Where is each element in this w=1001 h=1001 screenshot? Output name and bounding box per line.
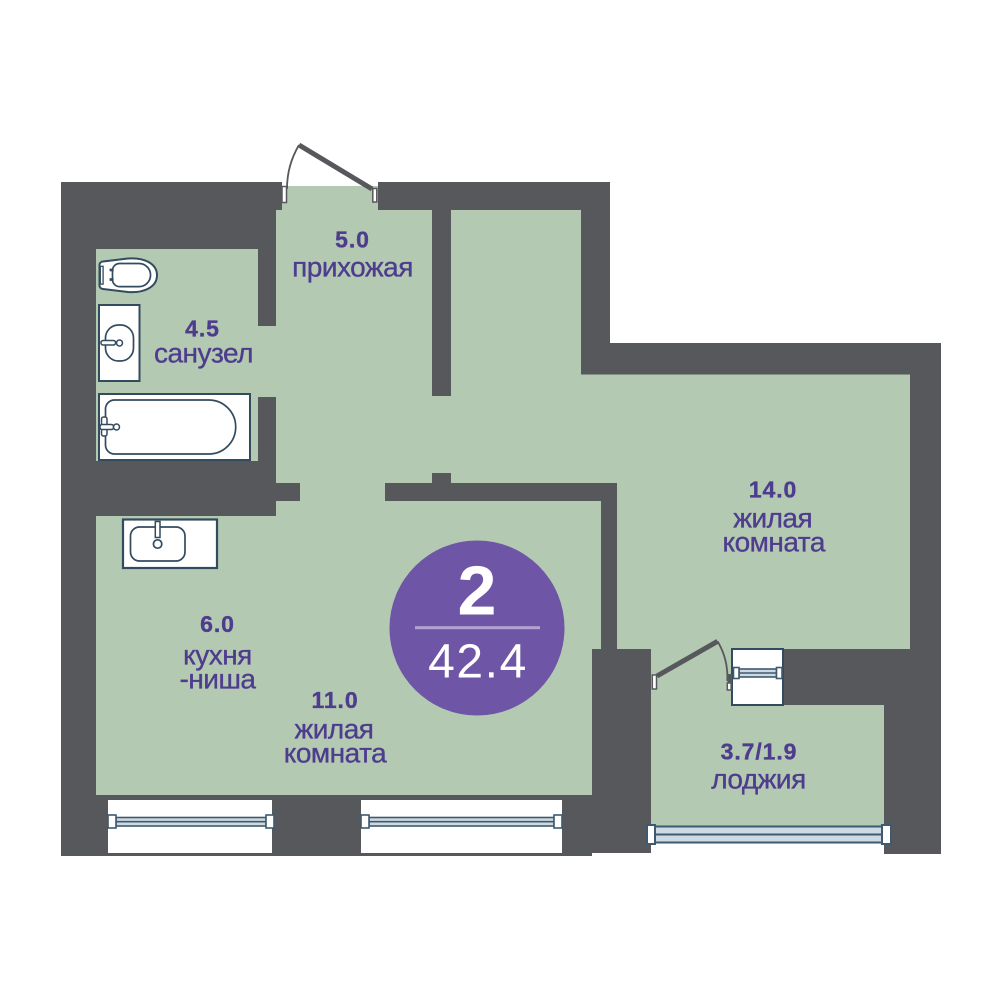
svg-text:лоджия: лоджия	[711, 764, 805, 795]
svg-text:6.0: 6.0	[200, 611, 235, 637]
svg-text:11.0: 11.0	[311, 687, 358, 713]
svg-text:14.0: 14.0	[749, 477, 797, 503]
svg-text:2: 2	[458, 552, 497, 630]
svg-text:санузел: санузел	[154, 338, 253, 369]
svg-text:комната: комната	[284, 738, 387, 769]
svg-text:5.0: 5.0	[335, 227, 370, 253]
svg-text:42.4: 42.4	[428, 636, 528, 689]
svg-text:3.7/1.9: 3.7/1.9	[721, 739, 798, 765]
svg-text:прихожая: прихожая	[292, 252, 413, 283]
svg-text:-ниша: -ниша	[180, 664, 257, 695]
svg-text:комната: комната	[723, 527, 826, 558]
